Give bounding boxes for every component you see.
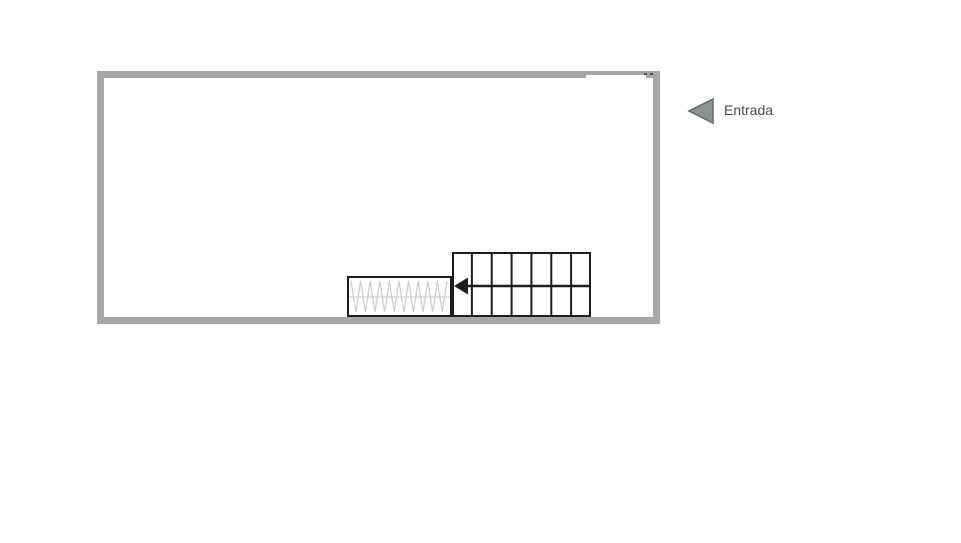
wall-bottom <box>97 317 660 324</box>
entrance-gap-dot-1 <box>644 73 647 75</box>
direction-arrow-head-icon <box>454 278 468 295</box>
wall-top-entrance-thin <box>586 71 646 75</box>
wall-left <box>97 71 104 324</box>
wall-top-main <box>97 71 586 78</box>
entrance-gap-dot-2 <box>650 73 653 75</box>
stair-grid <box>452 252 591 317</box>
drawing-canvas: Entrada <box>0 0 961 543</box>
entrance-label: Entrada <box>724 103 773 118</box>
ramp-hatch-area <box>347 276 452 317</box>
left-arrow-triangle-icon <box>687 97 715 125</box>
wall-right <box>653 71 660 324</box>
